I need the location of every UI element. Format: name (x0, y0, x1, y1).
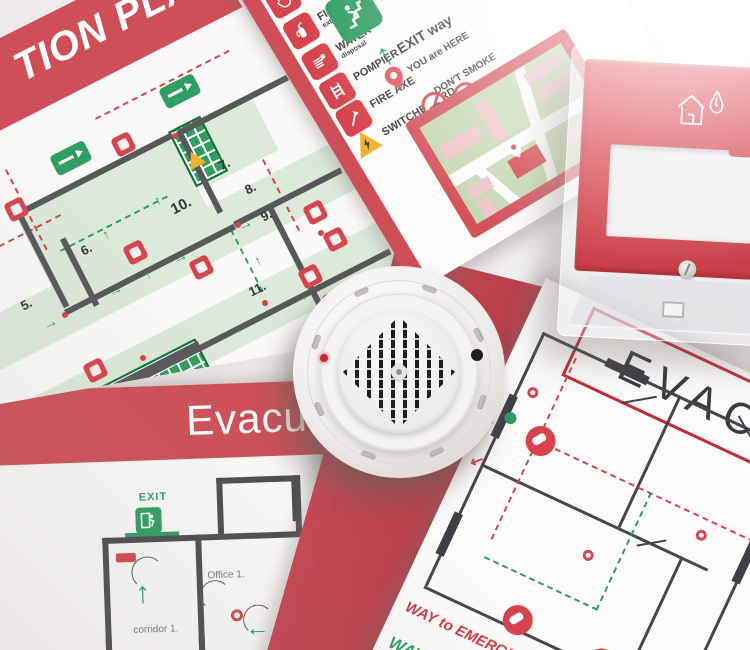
alarm-point (62, 312, 68, 318)
detector-test-button (471, 349, 483, 361)
wall-line (624, 556, 683, 650)
fire-extinguisher-marker (581, 644, 621, 650)
wall (199, 634, 206, 650)
alarm-point (694, 528, 709, 543)
alarm-point (231, 609, 243, 621)
alarm-point (525, 385, 540, 400)
alarm-point (318, 230, 324, 236)
call-point-glass (606, 144, 750, 244)
detector-led-indicator (320, 354, 328, 362)
reset-tab (728, 146, 750, 157)
furniture-symbol (116, 553, 136, 563)
wall (216, 475, 296, 484)
detector-center-hub (391, 364, 407, 380)
wall (102, 538, 112, 650)
smoke-detector (293, 266, 505, 478)
wall (216, 478, 224, 536)
wall (106, 638, 113, 650)
alarm-point (172, 133, 178, 139)
door-swing-arc (131, 556, 164, 589)
wall-line (481, 463, 709, 571)
escape-route-dashed (536, 439, 750, 542)
route-dashed-green (595, 492, 652, 611)
exit-label: EXIT (139, 492, 168, 504)
mounting-bracket (662, 301, 685, 318)
window-bar (731, 539, 750, 584)
fire-extinguisher-marker (498, 600, 538, 640)
wall (291, 479, 300, 521)
fire-alarm-call-point (557, 44, 750, 348)
screw (678, 260, 697, 279)
photo-evacuation-plans: Evacuati EXIT Office 1. Of corridor 1. c… (0, 0, 750, 650)
house-flame-icon (674, 85, 734, 132)
alarm-point (235, 222, 241, 228)
building (476, 196, 499, 222)
call-point-red-frame (574, 59, 750, 281)
route-dashed-green (484, 556, 598, 611)
wall-line (678, 450, 750, 650)
way-label: WAY (385, 633, 427, 650)
alarm-point (262, 300, 268, 306)
exit-sign-icon (135, 507, 162, 534)
window-bar (435, 511, 463, 556)
door-swing-arc (200, 580, 231, 611)
alarm-point (140, 355, 146, 361)
fire-extinguisher-marker (521, 421, 561, 461)
alarm-point (581, 548, 596, 563)
corridor-label: corridor 1. (133, 623, 178, 636)
building (438, 125, 484, 161)
building (465, 176, 494, 201)
running-man-icon (140, 512, 157, 529)
